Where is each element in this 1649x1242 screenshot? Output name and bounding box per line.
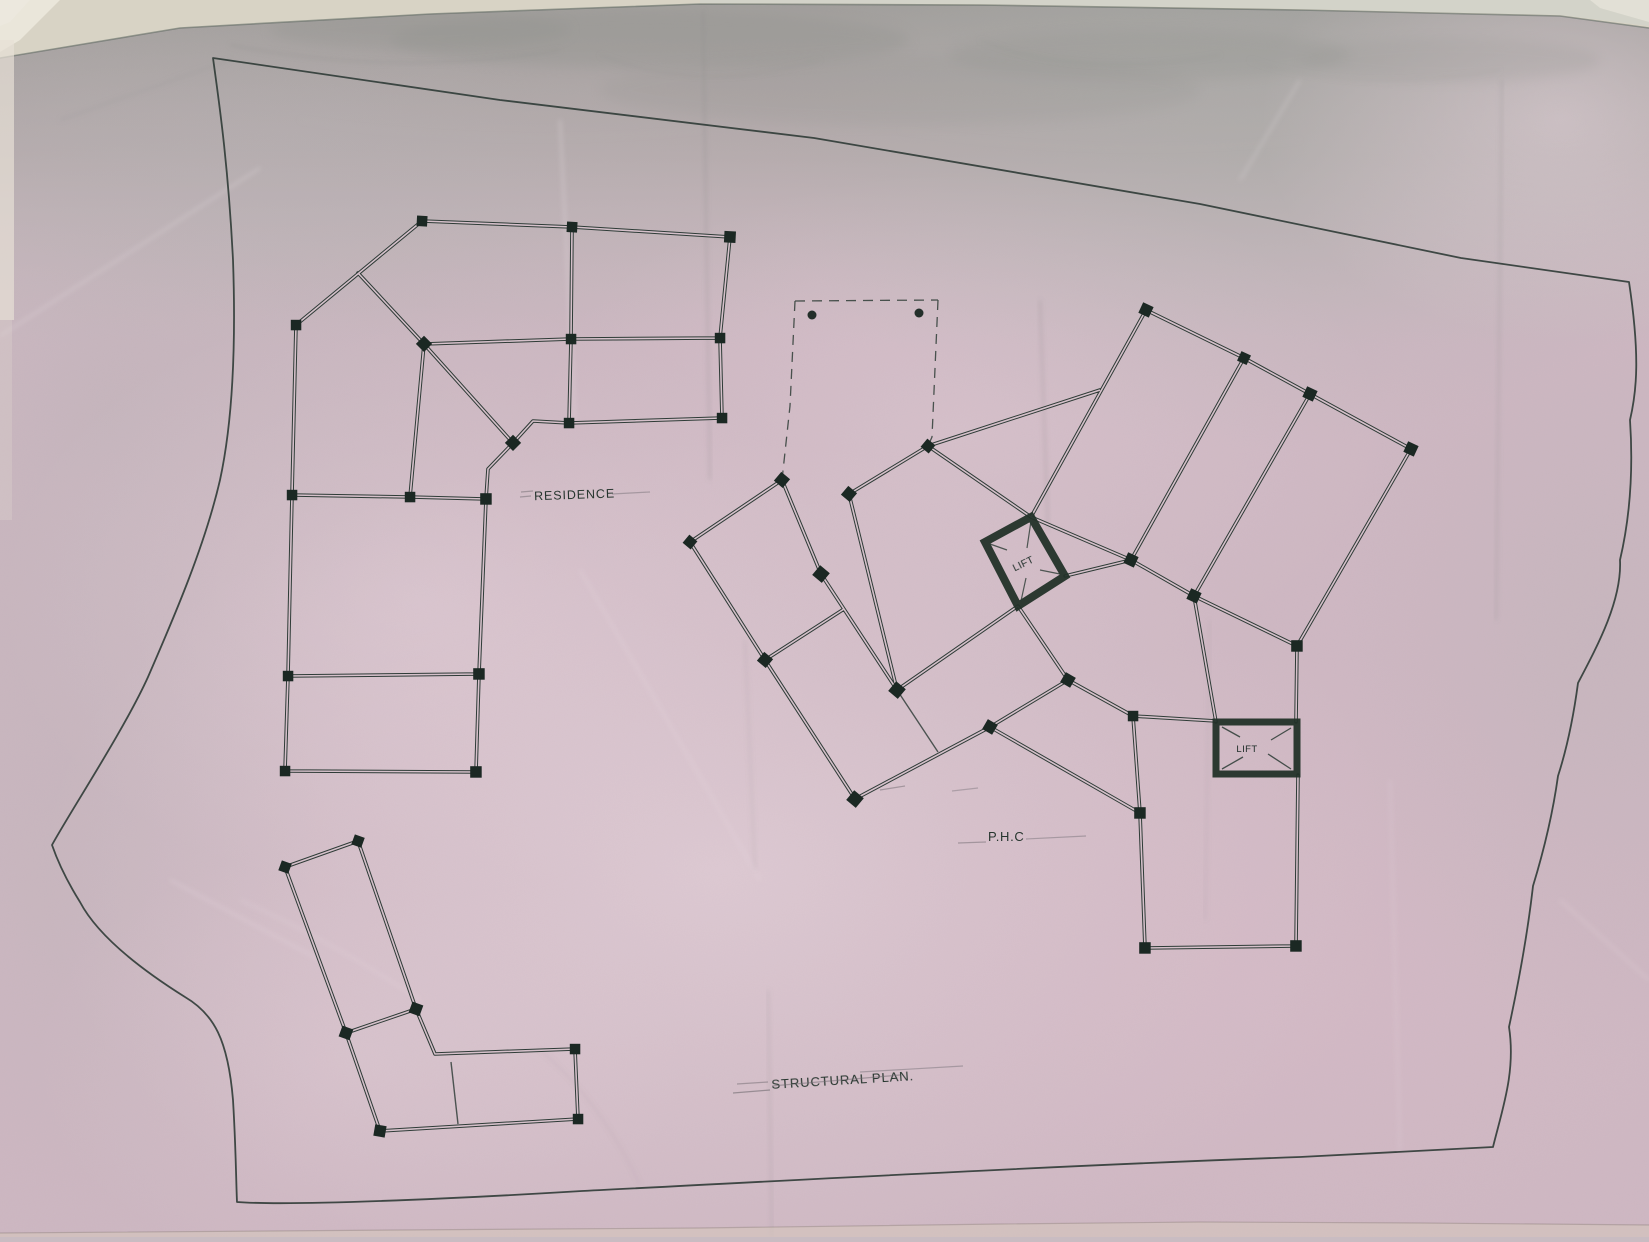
svg-text:RESIDENCE: RESIDENCE bbox=[534, 486, 615, 503]
svg-text:P.H.C: P.H.C bbox=[988, 829, 1025, 844]
svg-text:LIFT: LIFT bbox=[1236, 744, 1257, 755]
